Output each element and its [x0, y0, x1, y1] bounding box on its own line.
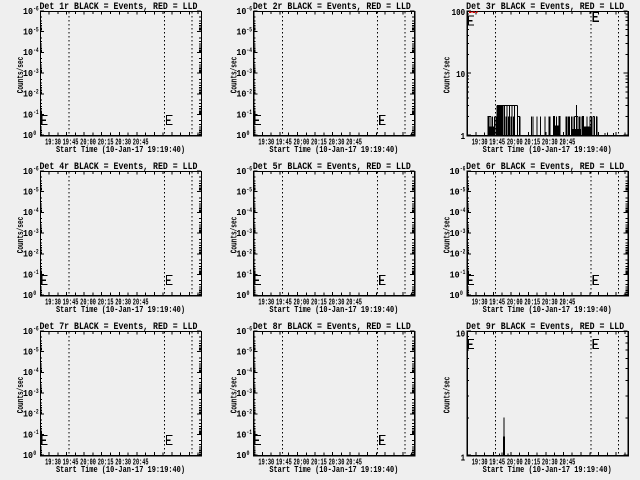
- svg-text:-2: -2: [247, 89, 253, 96]
- svg-text:0: 0: [33, 290, 36, 297]
- svg-text:10: 10: [23, 389, 33, 399]
- svg-text:-5: -5: [33, 186, 39, 193]
- svg-text:0: 0: [33, 450, 36, 457]
- svg-text:-6: -6: [247, 166, 253, 173]
- svg-text:-2: -2: [247, 249, 253, 256]
- svg-text:0: 0: [247, 130, 250, 137]
- svg-text:10: 10: [23, 270, 33, 280]
- svg-text:0: 0: [33, 130, 36, 137]
- svg-text:10: 10: [23, 48, 33, 58]
- svg-text:10: 10: [236, 110, 246, 120]
- svg-text:Det 1r BLACK = Events, RED = L: Det 1r BLACK = Events, RED = LLD: [40, 1, 198, 13]
- svg-text:-4: -4: [33, 367, 39, 374]
- svg-text:10: 10: [23, 28, 33, 38]
- svg-text:-1: -1: [460, 269, 466, 276]
- svg-text:-1: -1: [247, 109, 253, 116]
- svg-text:-2: -2: [33, 249, 39, 256]
- svg-text:10: 10: [236, 348, 246, 358]
- svg-text:Det 4r BLACK = Events, RED = L: Det 4r BLACK = Events, RED = LLD: [40, 161, 198, 173]
- svg-text:10: 10: [23, 291, 33, 301]
- svg-text:10: 10: [23, 327, 33, 337]
- svg-text:10: 10: [236, 48, 246, 58]
- svg-text:10: 10: [236, 250, 246, 260]
- svg-text:10: 10: [456, 70, 465, 80]
- svg-text:Det 8r BLACK = Events, RED = L: Det 8r BLACK = Events, RED = LLD: [253, 321, 411, 333]
- svg-text:10: 10: [450, 250, 460, 260]
- svg-text:-6: -6: [247, 326, 253, 333]
- svg-text:Start Time (10-Jan-17 19:19:40: Start Time (10-Jan-17 19:19:40): [483, 144, 612, 155]
- svg-text:-2: -2: [33, 409, 39, 416]
- svg-text:-3: -3: [247, 228, 253, 235]
- svg-text:-5: -5: [247, 26, 253, 33]
- svg-text:Start Time (10-Jan-17 19:19:40: Start Time (10-Jan-17 19:19:40): [269, 144, 398, 155]
- svg-text:-5: -5: [33, 26, 39, 33]
- svg-text:Start Time (10-Jan-17 19:19:40: Start Time (10-Jan-17 19:19:40): [56, 144, 185, 155]
- svg-text:-6: -6: [33, 166, 39, 173]
- svg-text:10: 10: [236, 327, 246, 337]
- svg-text:-5: -5: [33, 346, 39, 353]
- svg-text:Det 5r BLACK = Events, RED = L: Det 5r BLACK = Events, RED = LLD: [253, 161, 411, 173]
- svg-text:10: 10: [236, 229, 246, 239]
- svg-text:-6: -6: [460, 166, 466, 173]
- svg-text:10: 10: [236, 368, 246, 378]
- svg-text:100: 100: [452, 8, 466, 18]
- svg-text:10: 10: [23, 208, 33, 218]
- svg-text:10: 10: [236, 430, 246, 440]
- svg-text:Det 6r BLACK = Events, RED = L: Det 6r BLACK = Events, RED = LLD: [466, 161, 624, 173]
- svg-text:-3: -3: [33, 388, 39, 395]
- svg-text:10: 10: [23, 229, 33, 239]
- svg-text:Start Time (10-Jan-17 19:19:40: Start Time (10-Jan-17 19:19:40): [269, 304, 398, 315]
- svg-text:Start Time (10-Jan-17 19:19:40: Start Time (10-Jan-17 19:19:40): [483, 304, 612, 315]
- svg-text:Counts/sec: Counts/sec: [443, 57, 453, 94]
- svg-text:10: 10: [236, 451, 246, 461]
- svg-text:-3: -3: [247, 68, 253, 75]
- svg-text:10: 10: [23, 368, 33, 378]
- svg-text:10: 10: [23, 188, 33, 198]
- svg-text:-1: -1: [33, 109, 39, 116]
- svg-text:-5: -5: [460, 186, 466, 193]
- svg-text:10: 10: [236, 167, 246, 177]
- svg-text:10: 10: [236, 90, 246, 100]
- svg-text:-1: -1: [247, 269, 253, 276]
- svg-text:10: 10: [23, 250, 33, 260]
- svg-text:Start Time (10-Jan-17 19:19:40: Start Time (10-Jan-17 19:19:40): [269, 464, 398, 475]
- svg-text:10: 10: [450, 270, 460, 280]
- svg-text:Start Time (10-Jan-17 19:19:40: Start Time (10-Jan-17 19:19:40): [56, 464, 185, 475]
- svg-text:Det 2r BLACK = Events, RED = L: Det 2r BLACK = Events, RED = LLD: [253, 1, 411, 13]
- svg-text:10: 10: [236, 28, 246, 38]
- svg-text:10: 10: [23, 348, 33, 358]
- svg-text:10: 10: [236, 69, 246, 79]
- svg-text:10: 10: [23, 451, 33, 461]
- svg-text:10: 10: [23, 410, 33, 420]
- svg-text:-4: -4: [460, 207, 466, 214]
- svg-text:10: 10: [236, 188, 246, 198]
- svg-text:-5: -5: [247, 346, 253, 353]
- svg-text:10: 10: [236, 131, 246, 141]
- svg-text:-2: -2: [247, 409, 253, 416]
- svg-text:10: 10: [23, 90, 33, 100]
- svg-text:10: 10: [23, 69, 33, 79]
- svg-text:-6: -6: [247, 6, 253, 13]
- svg-text:Det 3r BLACK = Events, RED = L: Det 3r BLACK = Events, RED = LLD: [466, 1, 624, 13]
- svg-text:10: 10: [236, 291, 246, 301]
- svg-text:10: 10: [236, 7, 246, 17]
- svg-text:10: 10: [23, 167, 33, 177]
- svg-text:-1: -1: [33, 429, 39, 436]
- svg-text:-3: -3: [460, 228, 466, 235]
- svg-text:-4: -4: [33, 47, 39, 54]
- svg-text:-6: -6: [33, 6, 39, 13]
- svg-text:10: 10: [450, 229, 460, 239]
- svg-text:-4: -4: [247, 367, 253, 374]
- svg-text:Counts/sec: Counts/sec: [443, 377, 453, 414]
- svg-text:-6: -6: [33, 326, 39, 333]
- svg-text:Det 7r BLACK = Events, RED = L: Det 7r BLACK = Events, RED = LLD: [40, 321, 198, 333]
- svg-text:10: 10: [450, 167, 460, 177]
- svg-text:Start Time (10-Jan-17 19:19:40: Start Time (10-Jan-17 19:19:40): [483, 464, 612, 475]
- svg-text:10: 10: [236, 208, 246, 218]
- svg-text:-3: -3: [33, 68, 39, 75]
- svg-text:10: 10: [236, 389, 246, 399]
- svg-text:-2: -2: [33, 89, 39, 96]
- svg-text:Det 9r BLACK = Events, RED = L: Det 9r BLACK = Events, RED = LLD: [466, 321, 624, 333]
- svg-text:10: 10: [23, 430, 33, 440]
- svg-text:10: 10: [450, 291, 460, 301]
- svg-text:-1: -1: [33, 269, 39, 276]
- svg-text:10: 10: [450, 188, 460, 198]
- svg-text:0: 0: [247, 450, 250, 457]
- svg-text:1: 1: [461, 132, 466, 142]
- svg-text:-1: -1: [247, 429, 253, 436]
- svg-text:-2: -2: [460, 249, 466, 256]
- svg-text:1: 1: [461, 454, 466, 464]
- svg-text:10: 10: [236, 410, 246, 420]
- svg-text:10: 10: [456, 329, 465, 339]
- svg-text:10: 10: [236, 270, 246, 280]
- svg-text:Start Time (10-Jan-17 19:19:40: Start Time (10-Jan-17 19:19:40): [56, 304, 185, 315]
- svg-text:10: 10: [23, 131, 33, 141]
- svg-text:-3: -3: [247, 388, 253, 395]
- svg-text:10: 10: [450, 208, 460, 218]
- svg-text:-4: -4: [33, 207, 39, 214]
- svg-text:-5: -5: [247, 186, 253, 193]
- svg-text:-4: -4: [247, 207, 253, 214]
- svg-text:10: 10: [23, 110, 33, 120]
- svg-text:0: 0: [460, 290, 463, 297]
- svg-text:10: 10: [23, 7, 33, 17]
- svg-text:0: 0: [247, 290, 250, 297]
- svg-text:-3: -3: [33, 228, 39, 235]
- svg-text:-4: -4: [247, 47, 253, 54]
